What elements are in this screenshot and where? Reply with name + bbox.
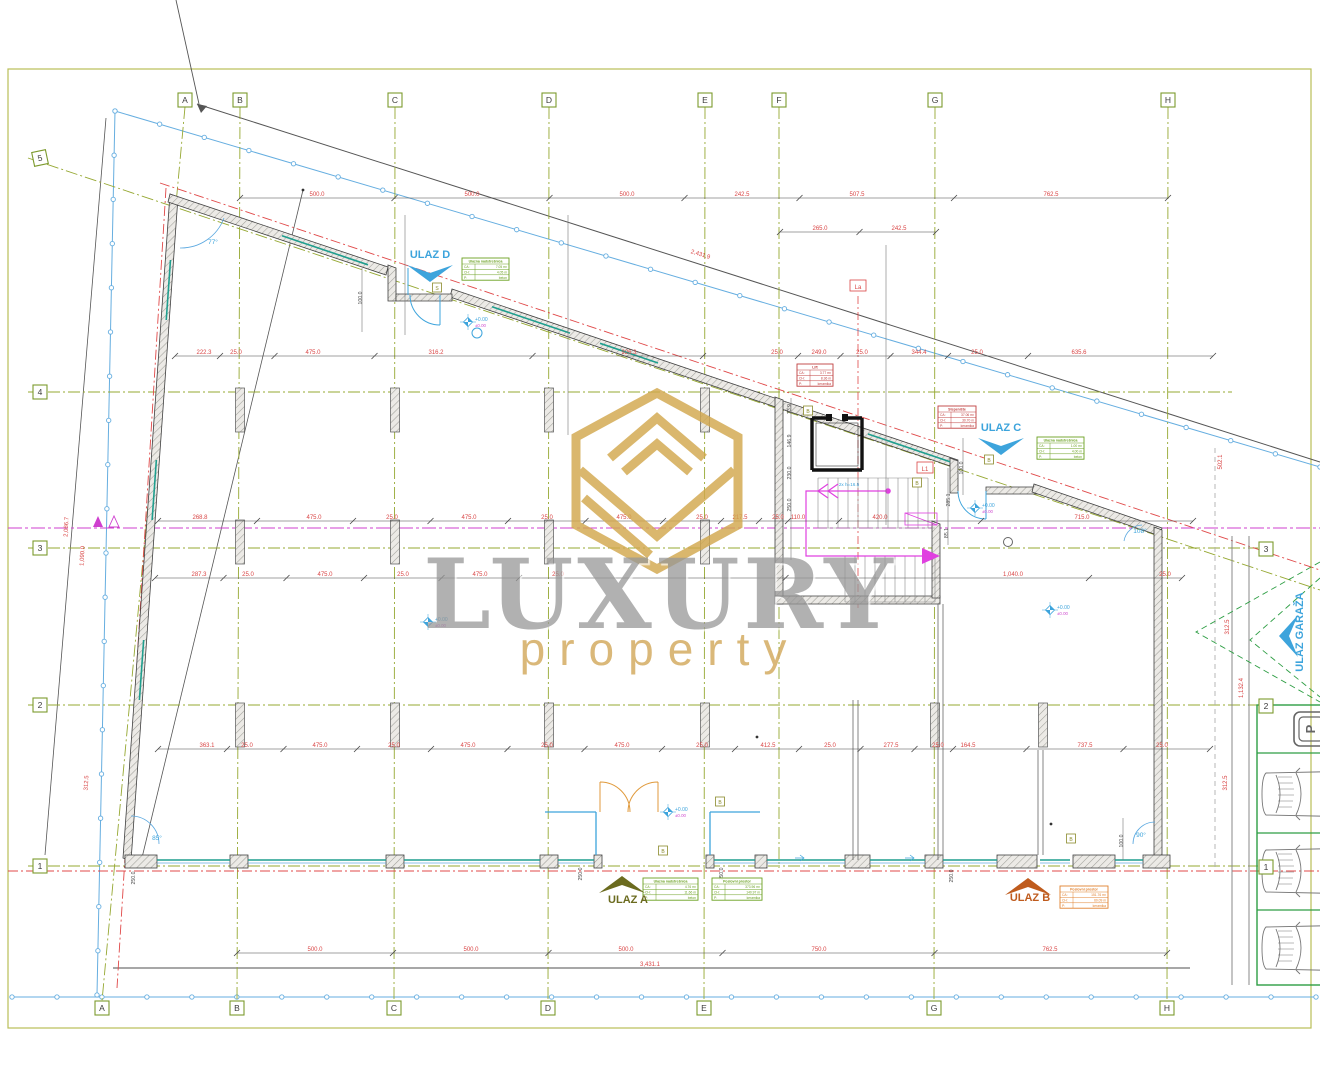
dim-label: 265.0 [812, 226, 828, 232]
legend-table: Ulazna nadstrešnicaCA:4.76 m²CH:11.66 mP… [643, 878, 698, 900]
legend-tables: Ulazna nadstrešnicaCA:7.05 m²CH:4.05 mP:… [462, 258, 1108, 908]
dim-label: 475.0 [305, 350, 321, 356]
table-title: Ulazna nadstrešnica [1044, 438, 1078, 442]
wall-top-b [450, 289, 958, 468]
grid-marker-label: G [932, 95, 939, 105]
wall-segment [125, 855, 157, 868]
columns [236, 388, 1048, 747]
elevation-datum: ±0.00 [1057, 611, 1069, 616]
grid-marker-g: G [927, 1001, 941, 1015]
boundary-point [1184, 425, 1188, 429]
ulaz-b-label: ULAZ B [1010, 892, 1050, 904]
grid-marker-label: C [392, 95, 398, 105]
boundary-point [1050, 386, 1054, 390]
table-cell: beton [1074, 455, 1082, 459]
table-title: Ulazna nadstrešnica [469, 259, 503, 263]
dim-label: 250.0 [949, 869, 955, 882]
wall-segment [386, 855, 404, 868]
grid-marker-1: 1 [33, 859, 47, 873]
position-label: B [716, 797, 725, 806]
table-cell: CA: [799, 371, 805, 375]
boundary-point [1089, 995, 1093, 999]
table-title: Ulazna nadstrešnica [654, 879, 688, 883]
boundary-point [97, 904, 101, 908]
boundary-point [504, 995, 508, 999]
boundary-point [729, 995, 733, 999]
boundary-point [202, 135, 206, 139]
boundary-point [99, 772, 103, 776]
walls [123, 194, 1162, 868]
dim-label: 250.0 [578, 867, 584, 880]
grid-marker-label: A [99, 1003, 105, 1013]
boundary-point [459, 995, 463, 999]
dim-label: 2x h=16.5 [839, 482, 860, 487]
table-cell: beton [499, 276, 507, 280]
position-label: B [659, 846, 668, 855]
ulaz-c: ULAZ C [978, 422, 1024, 455]
boundary-point [325, 995, 329, 999]
dim-label: 250.0 [787, 498, 793, 511]
boundary-point [107, 418, 111, 422]
dim-label: 110.0 [791, 515, 806, 521]
table-cell: CH: [714, 890, 720, 894]
grid-marker-label: G [931, 1003, 938, 1013]
column [236, 520, 245, 564]
table-cell: CA: [1039, 444, 1045, 448]
dim-label: 249.0 [811, 350, 827, 356]
table-cell: CA: [1062, 893, 1068, 897]
boundary-point [549, 995, 553, 999]
grid-marker-h: H [1161, 93, 1175, 107]
dim-label: 25.0 [1156, 743, 1168, 749]
interior-partitions [853, 604, 1043, 860]
grid-marker-1: 1 [1259, 860, 1273, 874]
dim-label: 25.0 [696, 743, 708, 749]
boundary-point [291, 162, 295, 166]
boundary-point [108, 330, 112, 334]
dim-label: 217.5 [732, 515, 748, 521]
dim-label: 164.5 [960, 743, 976, 749]
grid-marker-label: B [237, 95, 243, 105]
grid-marker-label: H [1164, 1003, 1170, 1013]
boundary-point [1044, 995, 1048, 999]
dim-label: 287.3 [191, 572, 207, 578]
dim-label: 762.5 [1043, 192, 1059, 198]
angle-label: 90° [1136, 831, 1146, 839]
grid-marker-4: 4 [33, 385, 47, 399]
dim-label: 475.0 [312, 743, 328, 749]
table-cell: CH: [464, 270, 470, 274]
parking-sign-icon: P [1294, 712, 1320, 746]
table-cell: CA: [940, 413, 946, 417]
elevation-diamond-fill [971, 504, 980, 513]
boundary-point [336, 175, 340, 179]
dim-label: 285.1 [946, 493, 952, 506]
boundary-point [1224, 995, 1228, 999]
boundary-point [1134, 995, 1138, 999]
grid-marker-label: A [182, 95, 188, 105]
table-cell: CA: [645, 885, 651, 889]
boundary-point [425, 201, 429, 205]
boundary-point [961, 359, 965, 363]
dim-label: 737.5 [1077, 743, 1093, 749]
column [236, 703, 245, 747]
wall-top-a [168, 194, 388, 275]
grid-marker-label: D [546, 95, 552, 105]
ulaz-b: ULAZ B [1005, 878, 1051, 904]
dim-label: 344.4 [911, 350, 927, 356]
boundary-point [594, 995, 598, 999]
dim-label: 926.3 [621, 350, 637, 356]
dim-label: 475.0 [317, 572, 333, 578]
table-cell: P: [464, 276, 467, 280]
dim-label: 635.6 [1071, 350, 1087, 356]
dim-label: 475.0 [616, 515, 632, 521]
boundary-point [782, 307, 786, 311]
table-cell: keramika [961, 424, 975, 428]
dim-label: 500.0 [309, 192, 325, 198]
grid-markers: ABCDEFGHABCDEGH54321321 [32, 93, 1273, 1015]
boundary-point [414, 995, 418, 999]
dim-label: 25.0 [230, 350, 242, 356]
boundary-point [157, 122, 161, 126]
reference-lines [8, 183, 1320, 988]
table-cell: CA: [714, 885, 720, 889]
dim-label: 25.0 [771, 350, 783, 356]
table-title: Poslovni prostor [1070, 887, 1098, 891]
wall-segment [845, 855, 870, 868]
boundary-point [10, 995, 14, 999]
angle-arcs [131, 218, 1155, 844]
table-cell: 37.06 m² [961, 413, 975, 417]
boundary-point [102, 639, 106, 643]
table-cell: 151.76 m² [1091, 893, 1107, 897]
ulaz-d-label: ULAZ D [410, 249, 450, 261]
table-cell: keramika [818, 382, 832, 386]
dim-label: 25.0 [696, 515, 708, 521]
dim-label: 25.0 [971, 350, 983, 356]
table-cell: P: [714, 896, 717, 900]
column [701, 520, 710, 564]
boundary-point [819, 995, 823, 999]
ulaz-c-arrow-icon [978, 438, 1024, 455]
boundary-point [1179, 995, 1183, 999]
table-cell: P: [1062, 904, 1065, 908]
boundary-point [639, 995, 643, 999]
position-label: S [433, 283, 442, 292]
boundary-point [145, 995, 149, 999]
entrance-labels: ULAZ AULAZ BULAZ CULAZ DULAZ GARAŽA [407, 249, 1306, 906]
dim-label: 316.2 [428, 350, 444, 356]
dim-label: 250.0 [131, 871, 137, 884]
wall-segment [230, 855, 248, 868]
boundary-point [101, 683, 105, 687]
boundary-point [1269, 995, 1273, 999]
dim-label: 25.0 [242, 572, 254, 578]
grid-marker-a: A [178, 93, 192, 107]
dim-label: 715.0 [1074, 515, 1090, 521]
grid-marker-label: 3 [1264, 544, 1269, 554]
ulaz-d: ULAZ D [407, 249, 453, 282]
ulaz-c-label: ULAZ C [981, 422, 1021, 434]
table-cell: CH: [1039, 449, 1045, 453]
boundary-point [96, 949, 100, 953]
boundary-point [470, 214, 474, 218]
stair-wall-left [775, 397, 783, 604]
dim-label: 100.0 [358, 291, 364, 304]
boundary-point [1139, 412, 1143, 416]
dim-label: 475.0 [461, 515, 477, 521]
boundary-point [954, 995, 958, 999]
dim-label: 25.0 [856, 350, 868, 356]
table-cell: 4.76 m² [685, 885, 697, 889]
table-cell: CA: [464, 265, 470, 269]
elevation-diamond-fill [664, 808, 673, 817]
dim-label: 230.0 [787, 466, 793, 479]
dim-label: 242.5 [734, 192, 750, 198]
grid-marker-c: C [387, 1001, 401, 1015]
grid-marker-label: H [1165, 95, 1171, 105]
dim-label: 3,431.1 [640, 962, 661, 968]
elevation-diamond-fill [1046, 606, 1055, 615]
reference-label: L1 [917, 462, 933, 473]
table-cell: keramika [747, 896, 761, 900]
dim-label: 500.0 [618, 947, 634, 953]
dim-label: 363.1 [199, 743, 215, 749]
boundary-point [1095, 399, 1099, 403]
elevation-datum: ±0.00 [982, 509, 994, 514]
dim-label: 762.5 [1042, 947, 1058, 953]
dim-label: 277.5 [883, 743, 899, 749]
dim-label: 500.0 [307, 947, 323, 953]
column [545, 520, 554, 564]
boundary-point [1314, 995, 1318, 999]
column [391, 520, 400, 564]
table-title: Poslovni prostor [723, 879, 751, 883]
dim-label: 312.5 [1223, 775, 1229, 791]
grid-marker-label: F [776, 95, 781, 105]
table-title: Stepenište [948, 407, 966, 411]
column [701, 703, 710, 747]
storefront-glazing [139, 236, 1143, 863]
table-cell: 4.00 m [1072, 449, 1082, 453]
elevation-marker: +0.00±0.00 [420, 614, 448, 630]
elevation-marker: +0.00±0.00 [460, 314, 488, 330]
dim-label: 73.9 [787, 404, 793, 414]
grid-marker-3: 3 [1259, 542, 1273, 556]
grid-marker-g: G [928, 93, 942, 107]
boundary-point [999, 995, 1003, 999]
dim-label: 750.0 [811, 947, 827, 953]
column [236, 388, 245, 432]
boundary-point [55, 995, 59, 999]
elevation-diamond-fill [424, 618, 433, 627]
boundary-point [98, 816, 102, 820]
dim-label: 25.0 [541, 515, 553, 521]
table-cell: 7.05 m² [496, 265, 508, 269]
dim-label: 242.5 [891, 226, 907, 232]
grid-marker-e: E [697, 1001, 711, 1015]
elevation-marker: +0.00±0.00 [967, 500, 995, 516]
boundary-point [648, 267, 652, 271]
ulaz-d-arrow-icon [407, 265, 453, 282]
boundary-point [684, 995, 688, 999]
legend-table: StepeništeCA:37.06 m²CH:30.70 mP:keramik… [938, 406, 976, 428]
angle-label: 85° [152, 834, 162, 842]
boundary-point [1005, 373, 1009, 377]
dim-label: 2,086.7 [63, 516, 70, 537]
legend-table: Poslovni prostorCA:373.96 m²CH:140.97 mP… [712, 878, 762, 900]
dim-label: 475.0 [614, 743, 630, 749]
dim-label: 500.0 [463, 947, 479, 953]
dim-label: 25.0 [388, 743, 400, 749]
dim-label: 475.0 [306, 515, 322, 521]
boundary-point [106, 462, 110, 466]
grid-marker-d: D [541, 1001, 555, 1015]
ulaz-garaza: ULAZ GARAŽA [1279, 592, 1306, 671]
column [545, 703, 554, 747]
column [545, 388, 554, 432]
boundary-point [559, 241, 563, 245]
legend-table: LiftCA:3.77 m²CH:8.36 mP:keramika [797, 364, 833, 386]
boundary-point [98, 860, 102, 864]
position-label: B [1067, 834, 1076, 843]
wall-segment [925, 855, 943, 868]
dim-label: 25.0 [397, 572, 409, 578]
grid-marker-label: 1 [1264, 862, 1269, 872]
boundary-point [104, 551, 108, 555]
grid-marker-a: A [95, 1001, 109, 1015]
grid-marker-label: D [545, 1003, 551, 1013]
reference-label: La [850, 280, 866, 291]
angle-label: 108° [1133, 527, 1147, 535]
grid-marker-e: E [698, 93, 712, 107]
site-boundary-lines [45, 0, 1320, 968]
boundary-point [827, 320, 831, 324]
doors [131, 218, 1155, 861]
table-cell: P: [799, 382, 802, 386]
boundary-point [110, 241, 114, 245]
grid-marker-b: B [230, 1001, 244, 1015]
stair-wall-right [932, 521, 940, 598]
boundary-point [112, 153, 116, 157]
dim-label: 25.0 [386, 515, 398, 521]
boundary-point [604, 254, 608, 258]
position-label: B [804, 406, 813, 415]
position-label: B [913, 478, 922, 487]
position-label: B [985, 455, 994, 464]
column [1039, 703, 1048, 747]
dim-label: 475.0 [472, 572, 488, 578]
glazing-run [492, 307, 570, 333]
grid-marker-label: B [234, 1003, 240, 1013]
grid-marker-label: 2 [38, 700, 43, 710]
grid-marker-3: 3 [33, 541, 47, 555]
boundary-point [113, 109, 117, 113]
dim-label: 475.0 [460, 743, 476, 749]
ulaz-a-label: ULAZ A [608, 894, 648, 906]
boundary-point [100, 728, 104, 732]
dim-label: 500.0 [619, 192, 635, 198]
boundary-point [1229, 438, 1233, 442]
structural-grid [28, 107, 1320, 1001]
table-cell: 11.66 m [684, 890, 696, 894]
grid-marker-label: 3 [38, 543, 43, 553]
boundary-point [864, 995, 868, 999]
glazing-run [282, 236, 368, 265]
column [391, 388, 400, 432]
angle-label: 77° [208, 238, 218, 246]
boundary-point [280, 995, 284, 999]
wall-segment [1143, 855, 1170, 868]
dim-label: 25.0 [772, 515, 784, 521]
boundary-point [109, 286, 113, 290]
dim-label: 502.1 [1218, 454, 1224, 470]
wall-segment [594, 855, 602, 868]
dim-label: 25.0 [932, 743, 944, 749]
grid-marker-label: 1 [38, 861, 43, 871]
table-cell: 373.96 m² [745, 885, 761, 889]
dim-label: 500.0 [464, 192, 480, 198]
table-cell: P: [1039, 455, 1042, 459]
legend-table: Poslovni prostorCA:151.76 m²CH:60.09 mP:… [1060, 886, 1108, 908]
column [701, 388, 710, 432]
table-cell: P: [940, 424, 943, 428]
grid-marker-d: D [542, 93, 556, 107]
grid-marker-2: 2 [33, 698, 47, 712]
table-cell: 3.77 m² [820, 371, 832, 375]
boundary-point [381, 188, 385, 192]
label-text: L1 [922, 467, 929, 473]
dim-label: 507.5 [849, 192, 865, 198]
elevation-diamond-fill [464, 318, 473, 327]
grid-marker-label: 2 [1264, 701, 1269, 711]
legend-table: Ulazna nadstrešnicaCA:7.05 m²CH:4.05 mP:… [462, 258, 509, 280]
table-cell: CH: [1062, 898, 1068, 902]
grid-marker-h: H [1160, 1001, 1174, 1015]
boundary-point [774, 995, 778, 999]
dim-label: 100.0 [1119, 834, 1125, 847]
column [391, 703, 400, 747]
dimension-labels: 500.0500.0500.0242.5507.5762.5265.0242.5… [63, 192, 1245, 968]
table-cell: keramika [1093, 904, 1107, 908]
table-cell: 140.97 m [746, 890, 760, 894]
grid-marker-label: C [391, 1003, 397, 1013]
wall-segment [755, 855, 767, 868]
table-cell: beton [688, 896, 696, 900]
floor-plan-sheet: P 500.0500.0500.0242.5507.5762.5265.0242… [0, 0, 1320, 1074]
grid-marker-label: E [701, 1003, 707, 1013]
table-cell: 1.00 m² [1071, 444, 1083, 448]
dim-label: 420.0 [872, 515, 888, 521]
grid-marker-b: B [233, 93, 247, 107]
ulaz-a: ULAZ A [599, 876, 648, 906]
boundary-point [111, 197, 115, 201]
floor-plan-drawing: P 500.0500.0500.0242.5507.5762.5265.0242… [0, 0, 1320, 1074]
dim-label: 1,040.0 [1003, 572, 1024, 578]
grid-marker-2: 2 [1259, 699, 1273, 713]
table-cell: CH: [799, 376, 805, 380]
elevation-marker: +0.00±0.00 [1042, 602, 1070, 618]
dim-label: 1,090.0 [79, 545, 86, 566]
wall-segment [997, 855, 1037, 868]
dim-label: 25.0 [541, 743, 553, 749]
elevation-marker: +0.00±0.00 [660, 804, 688, 820]
dim-label: 100.0 [959, 461, 965, 474]
glazing-run [868, 434, 950, 462]
boundary-point [693, 280, 697, 284]
boundary-point [190, 995, 194, 999]
